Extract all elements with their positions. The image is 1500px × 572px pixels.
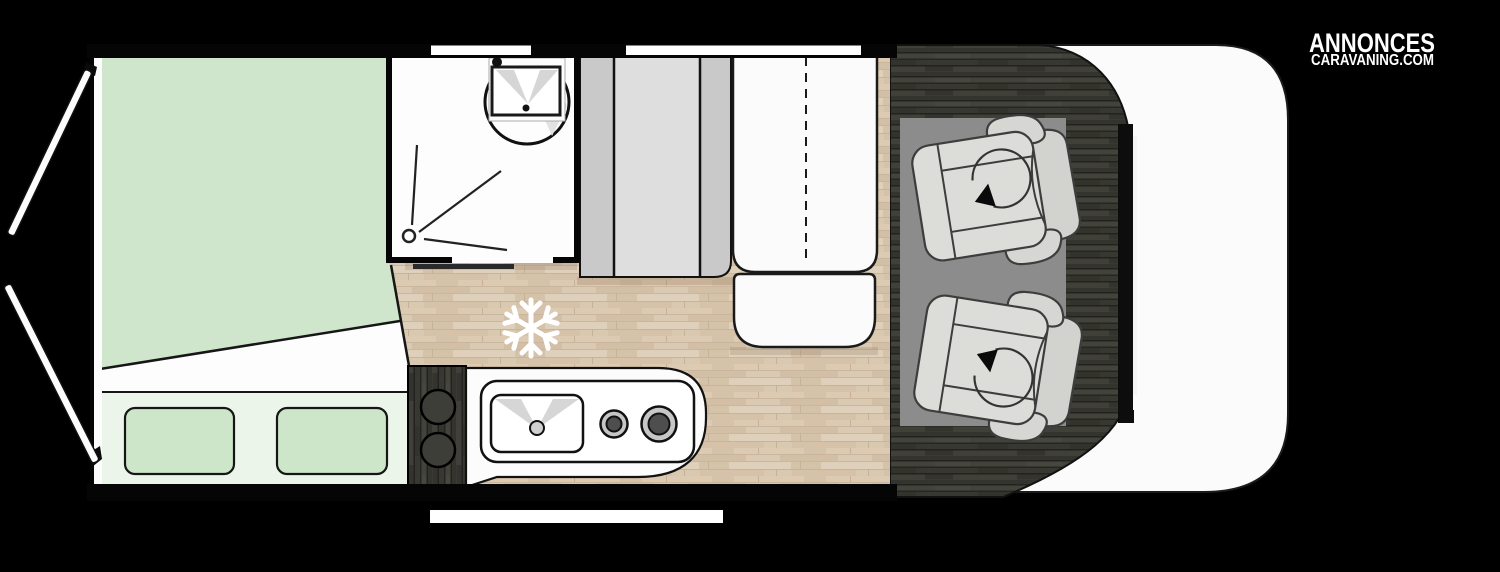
svg-text:CARAVANING.COM: CARAVANING.COM (1311, 52, 1434, 69)
